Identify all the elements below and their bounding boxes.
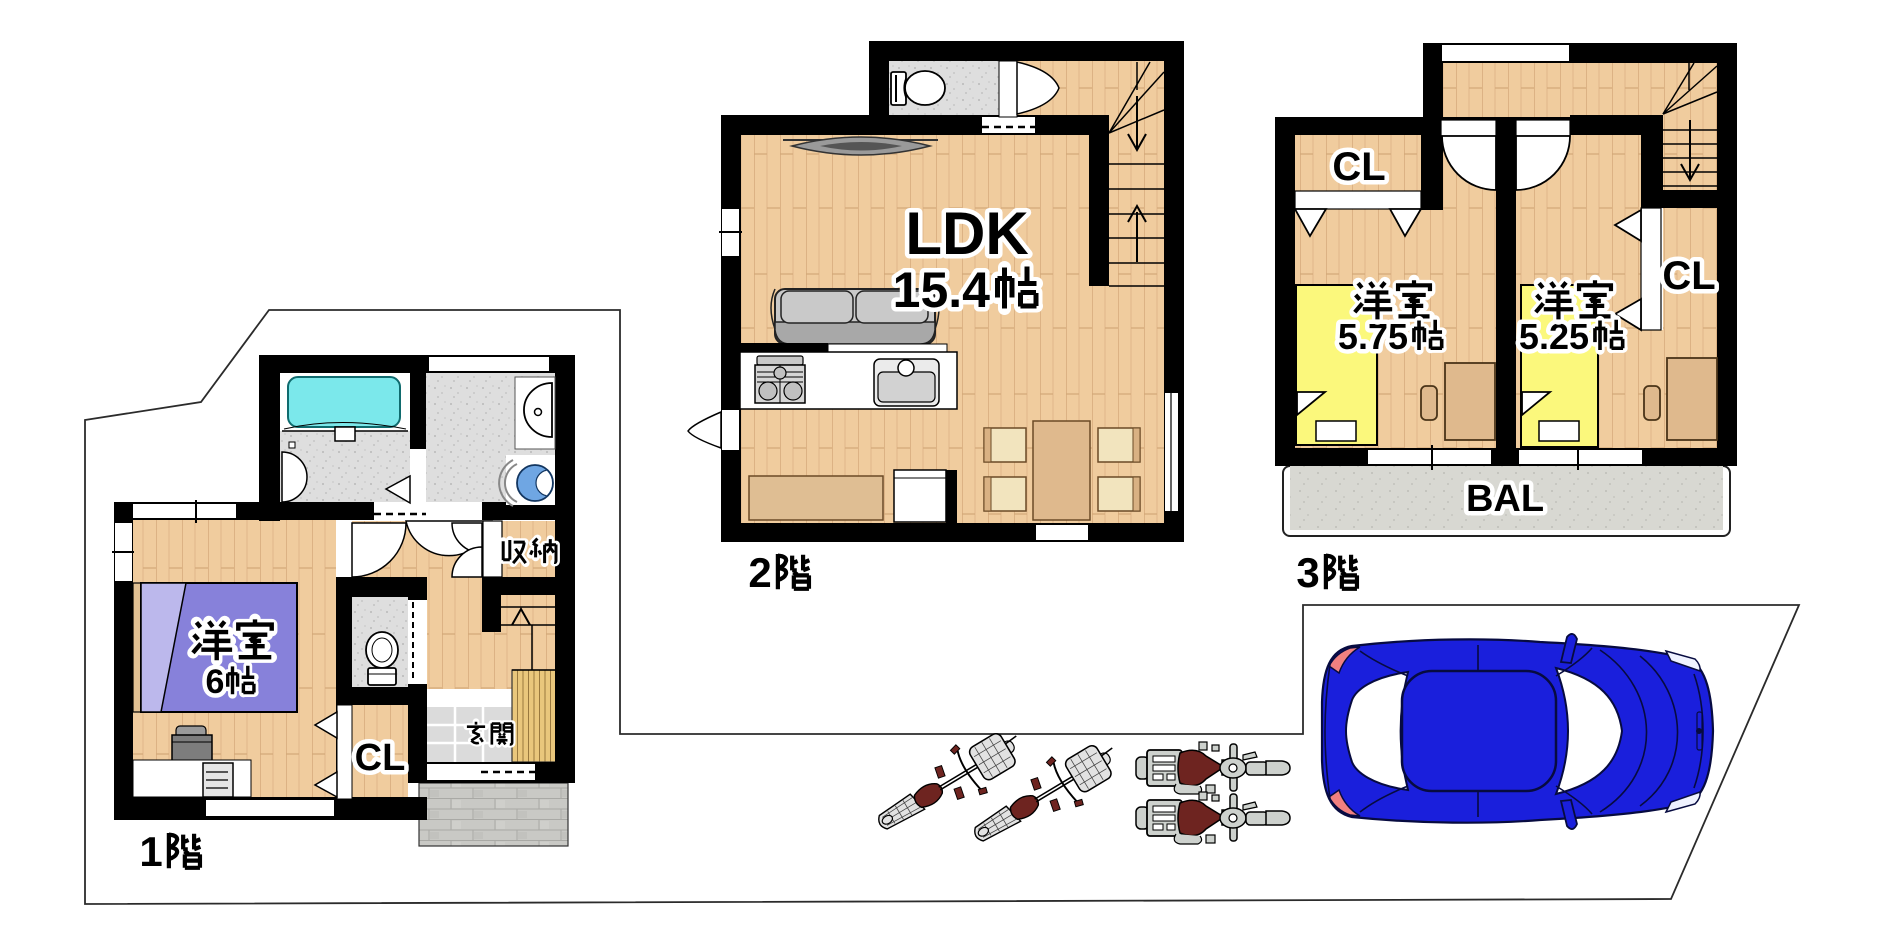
svg-text:2: 2 — [748, 549, 771, 596]
svg-text:6: 6 — [206, 663, 225, 701]
svg-text:CL: CL — [1332, 145, 1385, 189]
svg-text:3: 3 — [1296, 549, 1319, 596]
svg-text:15.4: 15.4 — [893, 262, 991, 318]
svg-text:1: 1 — [139, 828, 162, 875]
svg-text:CL: CL — [1662, 254, 1715, 298]
svg-text:LDK: LDK — [905, 200, 1028, 267]
svg-text:CL: CL — [355, 737, 406, 779]
svg-text:BAL: BAL — [1466, 478, 1544, 520]
